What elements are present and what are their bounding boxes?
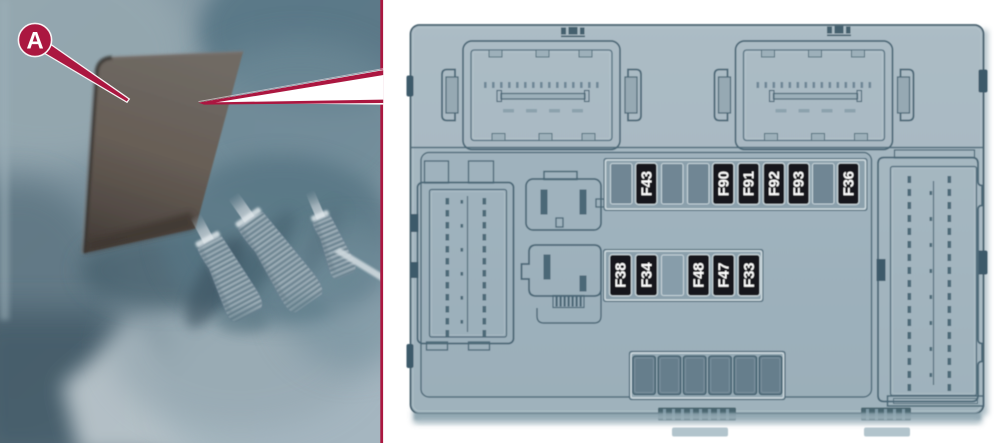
svg-text:F36: F36	[840, 171, 857, 196]
svg-text:F48: F48	[691, 263, 708, 288]
svg-text:F93: F93	[791, 171, 808, 196]
svg-text:A: A	[26, 28, 43, 55]
svg-text:F90: F90	[715, 171, 732, 196]
svg-text:F38: F38	[613, 263, 630, 288]
svg-text:F91: F91	[741, 171, 758, 196]
svg-text:F47: F47	[716, 263, 733, 288]
svg-text:F33: F33	[741, 263, 758, 288]
svg-text:F34: F34	[639, 262, 656, 288]
svg-text:F43: F43	[638, 171, 655, 196]
svg-text:F92: F92	[766, 171, 783, 196]
